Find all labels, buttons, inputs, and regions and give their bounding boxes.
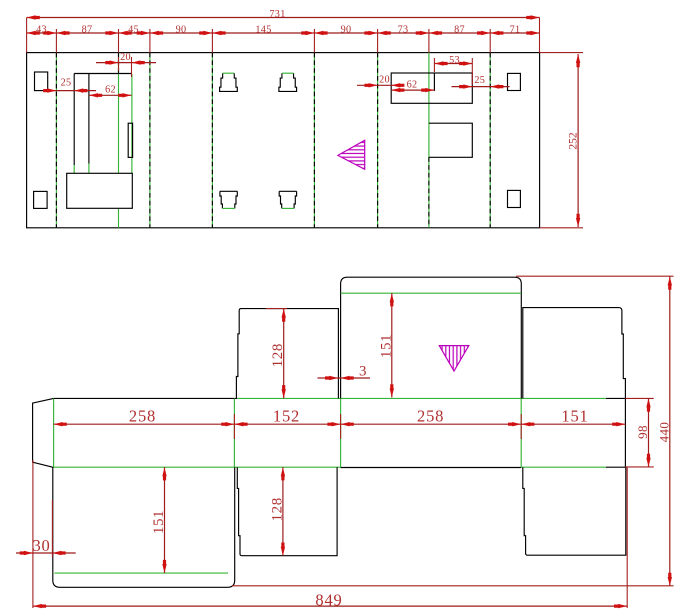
- svg-text:20: 20: [379, 75, 390, 86]
- svg-text:258: 258: [129, 407, 156, 426]
- svg-text:90: 90: [176, 24, 187, 35]
- svg-text:43: 43: [36, 24, 47, 35]
- svg-text:151: 151: [561, 407, 588, 426]
- svg-text:20: 20: [120, 52, 131, 63]
- svg-text:440: 440: [656, 422, 671, 443]
- svg-text:62: 62: [407, 80, 418, 91]
- svg-text:3: 3: [359, 364, 367, 380]
- svg-text:98: 98: [635, 425, 650, 439]
- svg-text:849: 849: [315, 590, 342, 609]
- svg-text:151: 151: [378, 334, 394, 358]
- svg-text:90: 90: [341, 24, 352, 35]
- svg-text:87: 87: [454, 24, 465, 35]
- svg-text:71: 71: [510, 24, 521, 35]
- svg-text:151: 151: [151, 510, 167, 534]
- svg-text:128: 128: [269, 497, 285, 521]
- svg-text:25: 25: [61, 78, 72, 89]
- svg-text:731: 731: [269, 9, 285, 20]
- svg-text:252: 252: [568, 132, 580, 150]
- svg-text:62: 62: [105, 84, 116, 95]
- svg-text:258: 258: [417, 407, 444, 426]
- svg-text:30: 30: [32, 536, 50, 555]
- svg-text:152: 152: [273, 407, 300, 426]
- svg-text:45: 45: [128, 24, 139, 35]
- svg-text:128: 128: [270, 343, 286, 367]
- svg-text:25: 25: [474, 75, 485, 86]
- svg-text:145: 145: [255, 24, 271, 35]
- svg-text:53: 53: [449, 55, 460, 66]
- svg-text:73: 73: [398, 24, 409, 35]
- svg-text:87: 87: [82, 24, 93, 35]
